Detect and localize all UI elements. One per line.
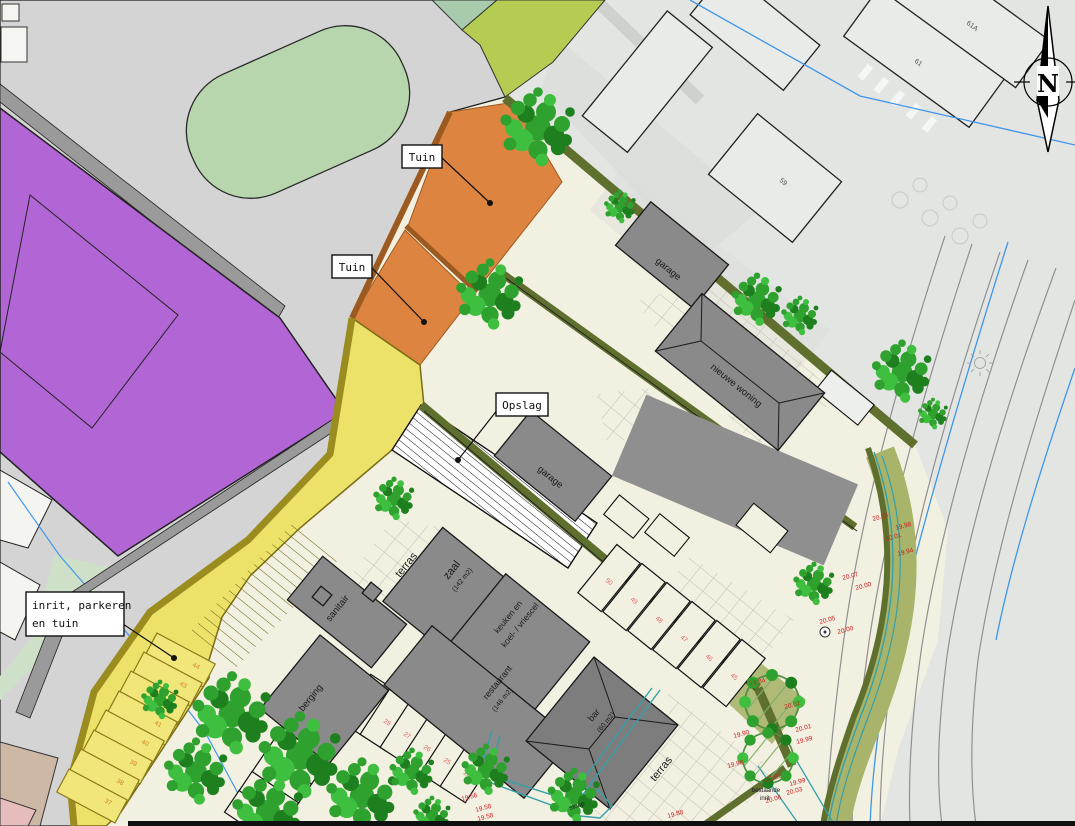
small-structure <box>1 27 27 62</box>
bestaande-inrit-label-1: bestaande <box>752 788 781 794</box>
leader-dot <box>421 319 427 325</box>
small-structure <box>2 4 19 21</box>
opslag-callout: Opslag <box>502 399 542 412</box>
site-plan-canvas: 59 61 61A <box>0 0 1075 826</box>
site-plan-drawing: 59 61 61A <box>0 0 1075 826</box>
drawing-frame-edge <box>128 821 1075 826</box>
tuin-callout-2: Tuin <box>339 261 366 274</box>
leader-dot <box>171 655 177 661</box>
leader-dot <box>487 200 493 206</box>
inrit-callout-2: en tuin <box>32 617 78 630</box>
tuin-callout-1: Tuin <box>409 151 436 164</box>
leader-dot <box>455 457 461 463</box>
inrit-callout-1: inrit, parkeren <box>32 599 131 612</box>
survey-marker <box>820 627 830 637</box>
north-arrow-label: N <box>1037 69 1059 98</box>
